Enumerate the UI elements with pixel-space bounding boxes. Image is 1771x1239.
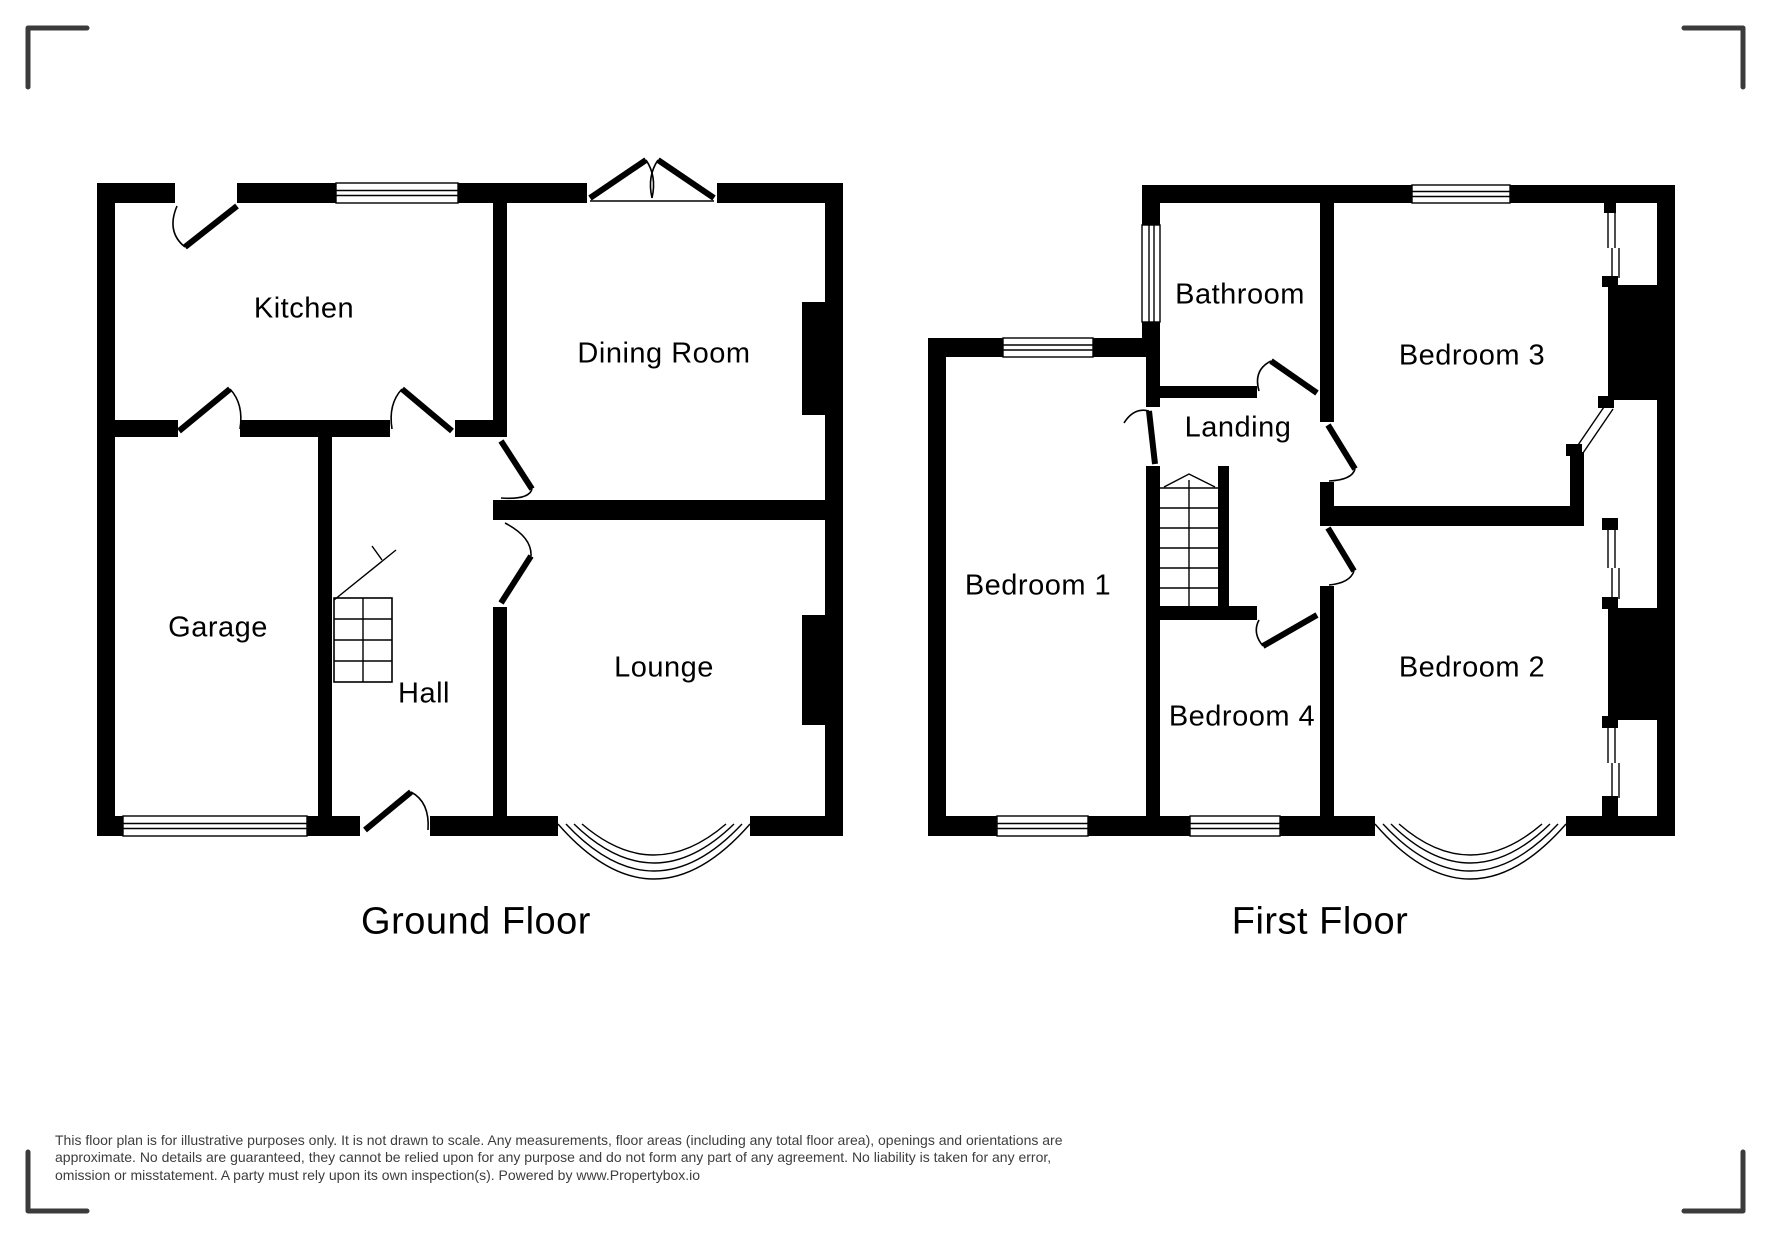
dining-chimney-breast	[802, 302, 843, 415]
first-staircase	[1146, 466, 1257, 620]
corner-marks	[28, 28, 1743, 1211]
corner-mark-top-right	[1684, 28, 1743, 87]
bedroom2-door	[1328, 528, 1354, 585]
front-door	[365, 792, 428, 830]
dining-french-doors	[590, 160, 714, 201]
bedroom2-bay-window	[1375, 824, 1566, 879]
room-label-lounge: Lounge	[614, 652, 714, 685]
kitchen-window	[336, 183, 458, 203]
ground-floor-title: Ground Floor	[361, 901, 591, 944]
disclaimer-line-2: approximate. No details are guaranteed, …	[55, 1149, 1051, 1167]
bedroom1-top-window	[1003, 338, 1093, 357]
room-label-bedroom2: Bedroom 2	[1399, 652, 1545, 685]
ground-floor-plan	[97, 160, 843, 879]
first-floor-title: First Floor	[1232, 901, 1409, 944]
room-label-bedroom1: Bedroom 1	[965, 570, 1111, 603]
lounge-bay-window	[558, 824, 750, 879]
room-label-bathroom: Bathroom	[1175, 279, 1305, 312]
room-label-kitchen: Kitchen	[254, 293, 354, 326]
floorplan-page: Kitchen Dining Room Garage Hall Lounge B…	[0, 0, 1771, 1239]
corner-mark-top-left	[28, 28, 87, 87]
ground-interior-walls	[115, 183, 825, 816]
kitchen-garage-door	[179, 389, 241, 431]
kitchen-back-door	[173, 206, 237, 247]
corner-mark-bottom-right	[1684, 1152, 1743, 1211]
hall-dining-door	[501, 441, 532, 498]
bathroom-door	[1258, 361, 1318, 393]
bedroom1-bottom-window	[997, 816, 1088, 836]
room-label-dining: Dining Room	[577, 338, 750, 371]
disclaimer-line-1: This floor plan is for illustrative purp…	[55, 1132, 1062, 1150]
lounge-chimney-breast	[802, 615, 843, 725]
kitchen-hall-door	[391, 389, 452, 431]
bedroom3-top-window	[1412, 185, 1510, 203]
room-label-bedroom3: Bedroom 3	[1399, 340, 1545, 373]
hall-lounge-door	[501, 523, 531, 603]
room-label-hall: Hall	[398, 678, 450, 711]
bathroom-window	[1142, 225, 1160, 322]
bedroom1-door	[1124, 410, 1155, 464]
room-label-bedroom4: Bedroom 4	[1169, 701, 1315, 734]
room-label-landing: Landing	[1185, 412, 1292, 445]
bedroom4-door	[1256, 615, 1317, 646]
ground-staircase	[334, 546, 396, 682]
room-label-garage: Garage	[168, 612, 268, 645]
disclaimer-line-3: omission or misstatement. A party must r…	[55, 1167, 700, 1185]
bedroom3-door	[1328, 425, 1355, 481]
bedroom2-chimney-breast	[1608, 608, 1675, 720]
bedroom3-chimney-breast	[1608, 285, 1675, 400]
bedroom4-bottom-window	[1190, 816, 1280, 836]
garage-door	[123, 816, 307, 836]
